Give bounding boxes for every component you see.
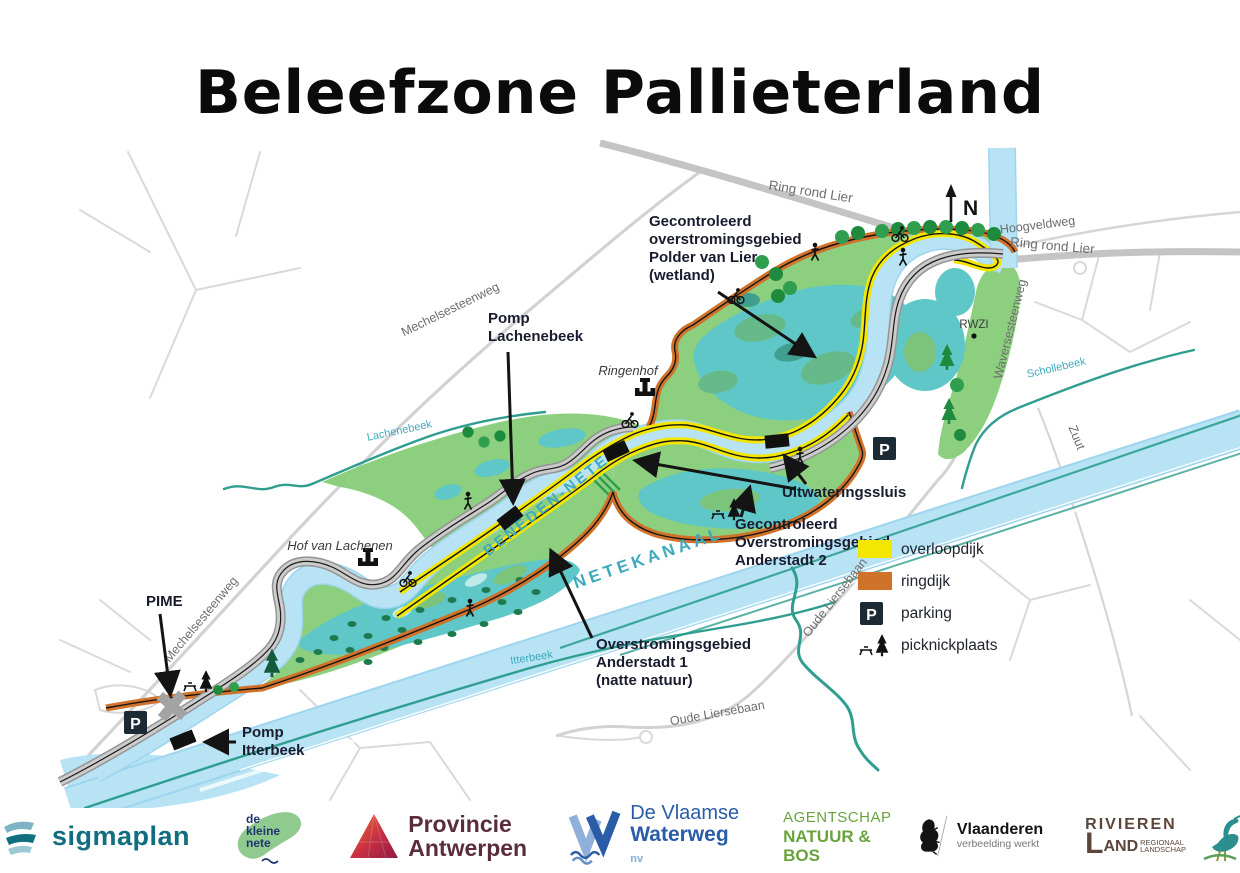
legend-item-overloopdijk: overloopdijk [858,540,984,558]
logo-provincie-antwerpen: Provincie Antwerpen [348,812,527,860]
svg-text:ringdijk: ringdijk [901,573,950,590]
svg-text:Polder van Lier: Polder van Lier [649,249,758,266]
logo-sigmaplan: sigmaplan [0,816,190,856]
water-label: Lachenebeek [366,418,434,444]
castle-icon-ringenhof [635,378,655,396]
road-label: Zuut [1066,423,1089,452]
road-label: Mechelsesteenweg [399,280,501,340]
svg-text:P: P [866,607,877,624]
svg-text:PIME: PIME [146,593,183,610]
logo-rivierenland: RIVIEREN LAND REGIONAAL LANDSCHAP [1085,809,1240,863]
rwzi-dot [971,333,976,338]
road-label: Mechelsesteenweg [161,574,241,665]
place-label-hof-van-lachenen: Hof van Lachenen [287,538,393,553]
svg-text:P: P [879,442,890,459]
water-label: Schollebeek [1026,355,1088,380]
map-legend: overloopdijk ringdijk P parking picknick… [858,540,998,656]
north-arrow: N [946,184,979,222]
svg-text:overstromingsgebied: overstromingsgebied [649,231,802,248]
svg-text:Uitwateringssluis: Uitwateringssluis [782,484,906,501]
svg-text:Pomp: Pomp [488,310,530,327]
svg-text:Gecontroleerd: Gecontroleerd [649,213,752,230]
legend-item-parking: P parking [860,602,952,625]
logo-de-kleine-nete: de kleine nete [232,805,306,867]
svg-text:Itterbeek: Itterbeek [242,742,305,759]
vlaanderen-lion-icon [910,812,949,860]
page-title: Beleefzone Pallieterland [0,58,1240,128]
logo-agentschap-natuur-en-bos: AGENTSCHAP NATUUR & BOS Vlaanderen verbe… [783,808,1043,865]
svg-text:Anderstadt 2: Anderstadt 2 [735,552,827,569]
svg-text:(wetland): (wetland) [649,267,715,284]
map-canvas: P P Ring rond Lier Hoogveldweg Ring rond… [0,140,1240,808]
svg-text:Lachenebeek: Lachenebeek [488,328,584,345]
sigmaplan-icon [0,816,44,856]
svg-text:P: P [130,716,141,733]
legend-swatch-overloopdijk [858,540,892,558]
legend-item-picknickplaats: picknickplaats [860,634,998,656]
svg-text:Gecontroleerd: Gecontroleerd [735,516,838,533]
parking-icon-pime: P [124,711,147,734]
svg-text:overloopdijk: overloopdijk [901,541,984,558]
rivierenland-heron-icon [1194,809,1240,863]
picnic-icon-legend [860,634,888,656]
place-label-ringenhof: Ringenhof [598,363,659,378]
svg-text:picknickplaats: picknickplaats [901,637,998,654]
road-label: Oude Liersebaan [669,698,766,728]
legend-swatch-ringdijk [858,572,892,590]
svg-text:N: N [963,197,978,220]
poster-page: Beleefzone Pallieterland [0,0,1240,873]
logo-de-vlaamse-waterweg: De Vlaamse Waterweg nv [569,803,741,870]
svg-text:Pomp: Pomp [242,724,284,741]
partner-logos: sigmaplan de kleine nete Provinc [0,801,1240,871]
place-label-rwzi: RWZI [959,319,988,331]
picnic-icon-pime [184,670,212,692]
parking-icon-kanaal: P [873,437,896,460]
svg-text:parking: parking [901,605,952,622]
provincie-antwerpen-icon [348,812,400,860]
svg-text:Anderstadt 1: Anderstadt 1 [596,654,688,671]
legend-item-ringdijk: ringdijk [858,572,950,590]
svg-text:Overstromingsgebied: Overstromingsgebied [596,636,751,653]
de-vlaamse-waterweg-icon [569,807,622,865]
svg-text:(natte natuur): (natte natuur) [596,672,693,689]
